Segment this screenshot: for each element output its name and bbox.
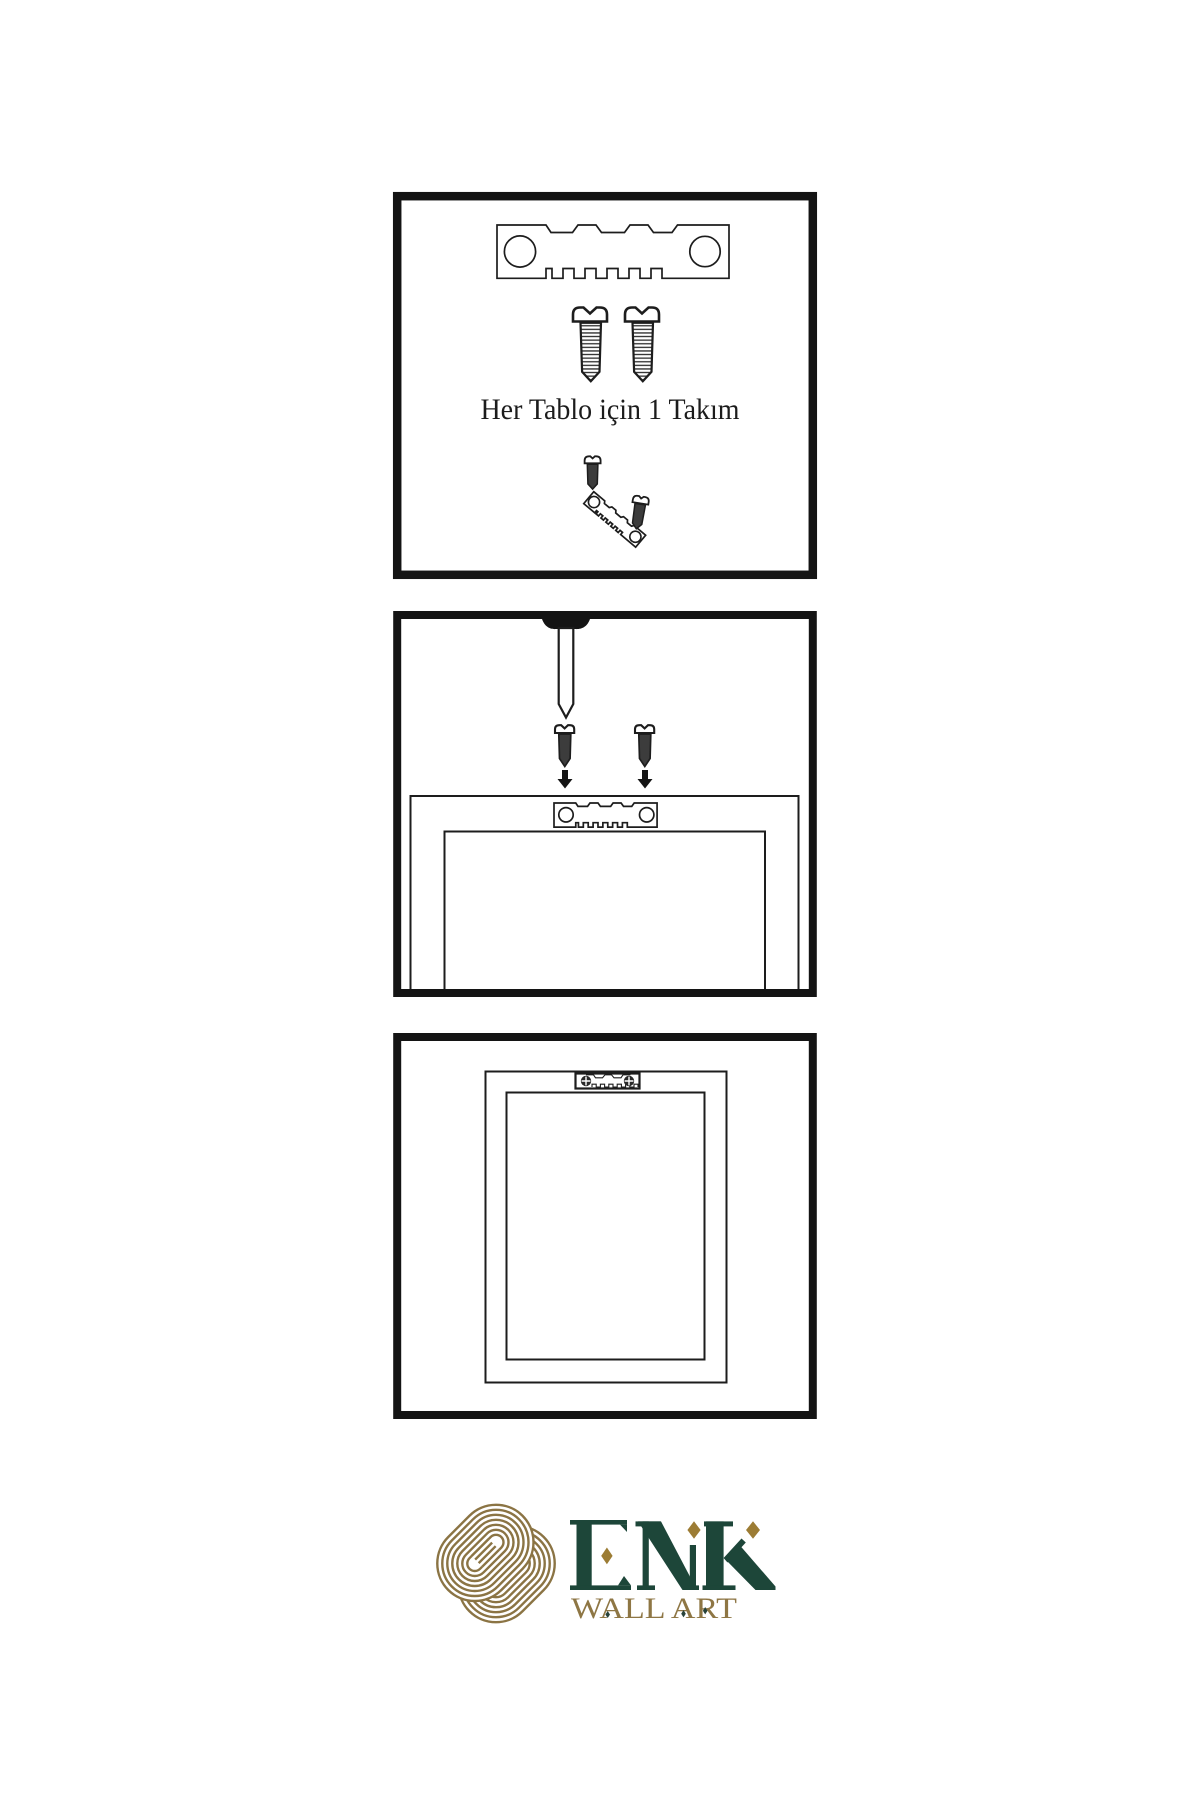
svg-text:Her Tablo için 1 Takım: Her Tablo için 1 Takım (481, 393, 740, 426)
svg-text:WALL ART: WALL ART (571, 1593, 737, 1625)
